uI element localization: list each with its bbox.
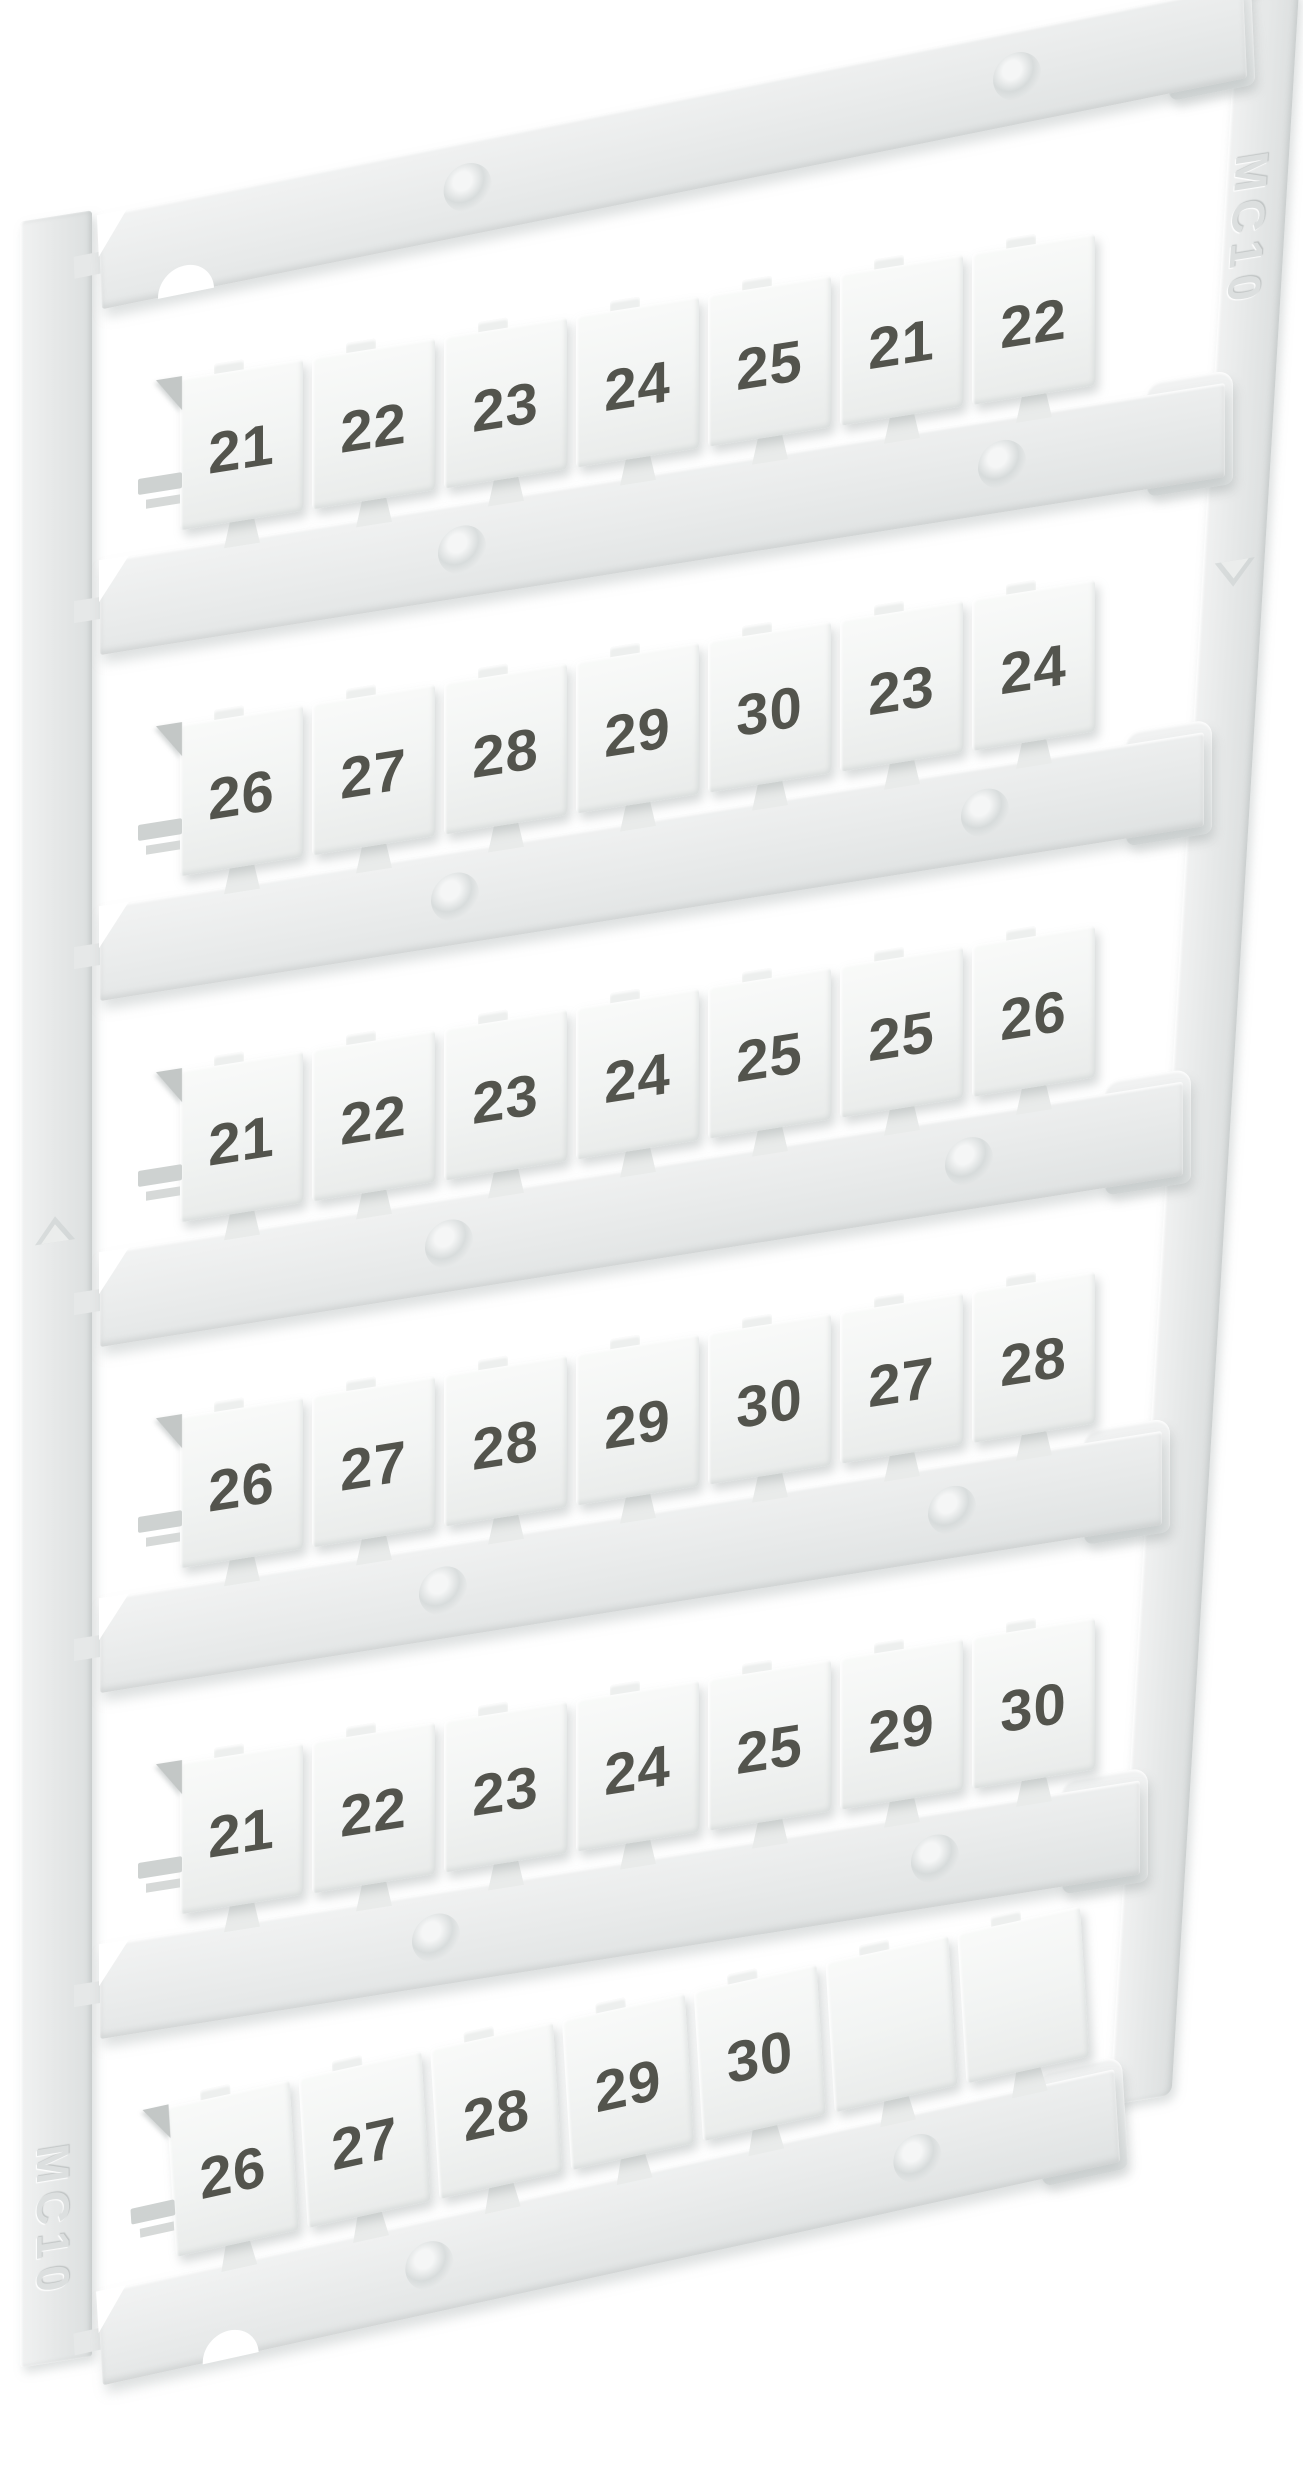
tag-number: 24: [576, 988, 699, 1159]
sprue-mark-triangle-icon: [156, 1414, 182, 1452]
marker-tag: 25: [840, 946, 963, 1117]
marker-tag: 26: [972, 925, 1095, 1096]
marker-tag: 27: [312, 1376, 435, 1547]
tag-number: 22: [312, 1030, 435, 1201]
marker-tag: 23: [444, 317, 567, 488]
tag-number: 25: [708, 1659, 831, 1830]
tag-number: 30: [694, 1964, 826, 2141]
marker-tag: 29: [840, 1638, 963, 1809]
tag-number: 28: [444, 1355, 567, 1526]
marker-tag: 28: [430, 2022, 562, 2199]
tag-number: 24: [576, 1680, 699, 1851]
sprue-mark-triangle-icon: [156, 1068, 182, 1106]
marker-tag: 29: [576, 1334, 699, 1505]
sprue-mark-stub-icon: [138, 1856, 182, 1879]
marker-tag: 30: [708, 1313, 831, 1484]
marker-tag: 23: [444, 1009, 567, 1180]
mold-dimple-icon: [419, 1563, 467, 1619]
bar-end-chamfer-icon: [99, 901, 129, 948]
marker-tag: 27: [312, 684, 435, 855]
tag-number: 29: [576, 642, 699, 813]
marker-tag: [825, 1935, 957, 2112]
marker-sheet: MC10 MC10 212223242521222627282930232421…: [12, 20, 1303, 2469]
tag-number: 26: [180, 705, 303, 876]
sprue-mark-stub-icon: [140, 2221, 174, 2237]
tag-number: 23: [444, 1009, 567, 1180]
tag-number: 23: [444, 1701, 567, 1872]
marker-tag: 25: [708, 1659, 831, 1830]
marker-tag: 26: [180, 705, 303, 876]
bar-end-chamfer-icon: [99, 1939, 129, 1986]
mold-dimple-icon: [992, 48, 1042, 105]
sprue-mark-triangle-icon: [156, 722, 182, 760]
marker-tag: 21: [180, 359, 303, 530]
marker-tag: 30: [972, 1617, 1095, 1788]
tag-number: 25: [708, 967, 831, 1138]
marker-tag: 26: [180, 1397, 303, 1568]
marker-tag: 30: [708, 621, 831, 792]
marker-tag: 22: [312, 1030, 435, 1201]
bar-end-chamfer-icon: [99, 1593, 129, 1640]
sprue-mark-stub-icon: [146, 1186, 180, 1200]
tag-number: 26: [972, 925, 1095, 1096]
marker-tag: 22: [312, 1722, 435, 1893]
tag-number: 29: [562, 1993, 694, 2170]
marker-tag: 28: [444, 1355, 567, 1526]
tag-number: 24: [576, 296, 699, 467]
marker-tag: 21: [840, 254, 963, 425]
marker-tag: 25: [708, 275, 831, 446]
tag-number: 26: [180, 1397, 303, 1568]
marker-tag: 22: [312, 338, 435, 509]
tag-number: 27: [312, 684, 435, 855]
tag-number: 28: [430, 2022, 562, 2199]
tag-number: 22: [972, 233, 1095, 404]
marker-tag: 26: [167, 2080, 299, 2257]
tag-number: 22: [312, 1722, 435, 1893]
tag-number: 25: [840, 946, 963, 1117]
tag-number: 30: [708, 621, 831, 792]
mold-dimple-icon: [928, 1482, 976, 1538]
marker-tag: 21: [180, 1051, 303, 1222]
marker-tag: 29: [562, 1993, 694, 2170]
sprue-mark-stub-icon: [146, 1878, 180, 1892]
mold-dimple-icon: [425, 1216, 473, 1272]
tag-number: 26: [167, 2080, 299, 2257]
marker-tag: 28: [972, 1271, 1095, 1442]
bar-end-chamfer-icon: [99, 555, 129, 602]
sprue-mark-stub-icon: [130, 2199, 175, 2224]
sprue-mark-stub-icon: [138, 1510, 182, 1533]
marker-tag: 22: [972, 233, 1095, 404]
marker-tag: 27: [840, 1292, 963, 1463]
tag-number: 27: [298, 2051, 430, 2228]
bar-end-chamfer-icon: [99, 1247, 129, 1294]
marker-tag: 27: [298, 2051, 430, 2228]
sprue-mark-triangle-icon: [156, 376, 182, 414]
marker-tag: 29: [576, 642, 699, 813]
mold-dimple-icon: [945, 1134, 993, 1190]
marker-tag: 23: [840, 600, 963, 771]
tag-number: [957, 1906, 1089, 2083]
mold-dimple-icon: [978, 436, 1026, 492]
mold-dimple-icon: [431, 869, 479, 925]
tag-number: 24: [972, 579, 1095, 750]
sprue-mark-stub-icon: [146, 1532, 180, 1546]
half-round-notch-icon: [157, 260, 214, 299]
tag-number: 23: [444, 317, 567, 488]
tag-number: [825, 1935, 957, 2112]
marker-tag: 24: [576, 296, 699, 467]
sprue-mark-stub-icon: [138, 1164, 182, 1187]
marker-tag: 30: [694, 1964, 826, 2141]
sprue-mark-stub-icon: [138, 472, 182, 495]
tag-number: 23: [840, 600, 963, 771]
bar-end-chamfer-icon: [97, 209, 129, 257]
tag-number: 21: [840, 254, 963, 425]
marker-tag: 23: [444, 1701, 567, 1872]
marker-tag: [957, 1906, 1089, 2083]
tag-number: 21: [180, 359, 303, 530]
marker-tag: 24: [576, 988, 699, 1159]
tag-number: 25: [708, 275, 831, 446]
mold-dimple-icon: [412, 1910, 460, 1966]
tag-number: 29: [840, 1638, 963, 1809]
mold-dimple-icon: [443, 159, 493, 216]
tag-number: 21: [180, 1051, 303, 1222]
mold-dimple-icon: [404, 2237, 455, 2295]
tag-number: 30: [972, 1617, 1095, 1788]
marker-tag: 28: [444, 663, 567, 834]
tag-number: 29: [576, 1334, 699, 1505]
mold-dimple-icon: [911, 1831, 959, 1887]
half-round-notch-icon: [201, 2324, 259, 2364]
tag-number: 28: [972, 1271, 1095, 1442]
tag-number: 27: [840, 1292, 963, 1463]
mold-dimple-icon: [438, 522, 486, 578]
tag-number: 28: [444, 663, 567, 834]
marker-tag: 24: [972, 579, 1095, 750]
sprue-mark-stub-icon: [146, 840, 180, 854]
tag-number: 30: [708, 1313, 831, 1484]
marker-tag: 24: [576, 1680, 699, 1851]
sprue-mark-triangle-icon: [156, 1760, 182, 1798]
marker-tag: 21: [180, 1743, 303, 1914]
tag-number: 22: [312, 338, 435, 509]
sprue-mark-stub-icon: [146, 494, 180, 508]
bar-end-chamfer-icon: [96, 2285, 129, 2333]
tag-number: 27: [312, 1376, 435, 1547]
tag-number: 21: [180, 1743, 303, 1914]
marker-tag: 25: [708, 967, 831, 1138]
mold-dimple-icon: [892, 2129, 943, 2187]
mold-dimple-icon: [961, 785, 1009, 841]
sprue-mark-stub-icon: [138, 818, 182, 841]
